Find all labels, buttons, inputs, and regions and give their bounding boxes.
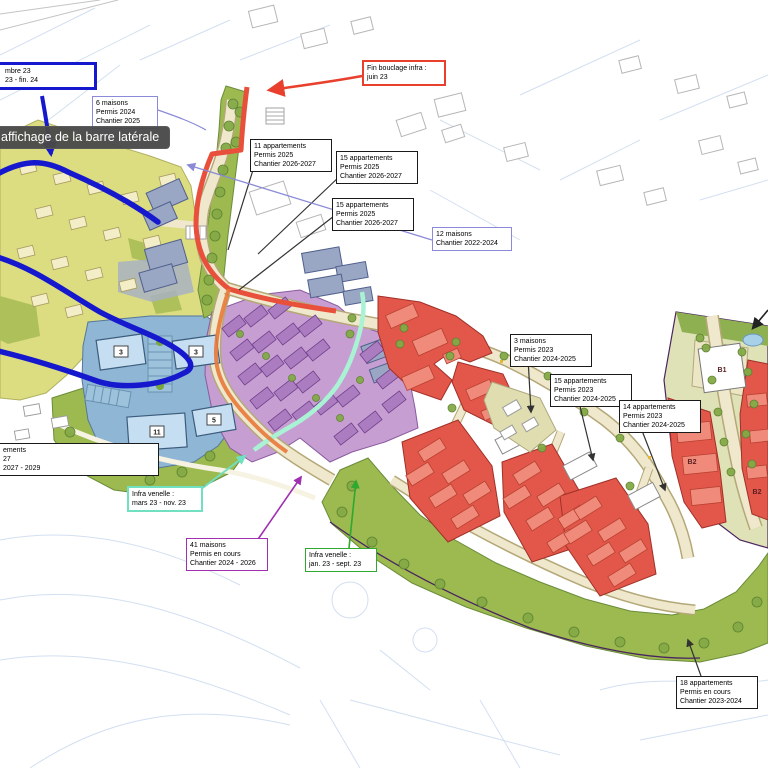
annotation-line: 12 maisons [436, 230, 508, 239]
annotation-line: 23 - fin. 24 [5, 76, 91, 85]
block-code-b2a: B2 [688, 459, 697, 466]
annotation-infra-top-partial: mbre 23 23 - fin. 24 [0, 62, 97, 90]
annotation-line: Chantier 2024-2025 [554, 395, 628, 404]
annotation-line: Permis 2025 [254, 151, 328, 160]
annotation-line: Permis 2023 [554, 386, 628, 395]
annotation-line: Chantier 2025 [96, 117, 154, 126]
annotation-line: Chantier 2026-2027 [340, 172, 414, 181]
annotation-line: jan. 23 - sept. 23 [309, 560, 373, 569]
annotation-line: 27 [3, 455, 155, 464]
block-code-b2b: B2 [753, 489, 762, 496]
unit-count: 11 [153, 430, 161, 437]
annotation-infra-venelle-mars: Infra venelle : mars 23 - nov. 23 [127, 486, 203, 512]
annotation-line: 2027 - 2029 [3, 464, 155, 473]
annotation-line: Permis 2023 [514, 346, 588, 355]
annotation-line: 6 maisons [96, 99, 154, 108]
annotation-12-maisons: 12 maisons Chantier 2022-2024 [432, 227, 512, 251]
annotation-line: Fin bouclage infra : [367, 64, 441, 73]
masterplan-viewer: 3 3 11 5 B1 B2 B2 mbre 23 23 - fin. 24 6… [0, 0, 768, 768]
annotation-line: Permis 2025 [336, 210, 410, 219]
tooltip-text: affichage de la barre latérale [1, 130, 159, 144]
annotation-line: Chantier 2026-2027 [254, 160, 328, 169]
annotation-line: Chantier 2024-2025 [514, 355, 588, 364]
annotation-18-appartements: 18 appartements Permis en cours Chantier… [676, 676, 758, 709]
unit-count: 3 [119, 350, 123, 357]
annotation-41-maisons: 41 maisons Permis en cours Chantier 2024… [186, 538, 268, 571]
unit-count: 5 [212, 418, 216, 425]
annotation-line: Chantier 2024-2025 [623, 421, 697, 430]
annotation-15-appartements-b: 15 appartements Permis 2025 Chantier 202… [332, 198, 414, 231]
sidebar-toggle-tooltip: affichage de la barre latérale [0, 126, 170, 149]
annotation-line: 15 appartements [336, 201, 410, 210]
annotation-line: 14 appartements [623, 403, 697, 412]
annotation-line: 3 maisons [514, 337, 588, 346]
annotation-fin-bouclage-infra: Fin bouclage infra : juin 23 [362, 60, 446, 86]
maisons3-plot [484, 382, 556, 452]
annotation-3-maisons: 3 maisons Permis 2023 Chantier 2024-2025 [510, 334, 592, 367]
annotation-line: 15 appartements [554, 377, 628, 386]
annotation-line: 11 appartements [254, 142, 328, 151]
annotation-infra-venelle-jan: Infra venelle : jan. 23 - sept. 23 [305, 548, 377, 572]
annotation-line: Chantier 2022-2024 [436, 239, 508, 248]
annotation-14-appartements: 14 appartements Permis 2023 Chantier 202… [619, 400, 701, 433]
annotation-line: Infra venelle : [309, 551, 373, 560]
annotation-line: Chantier 2023-2024 [680, 697, 754, 706]
annotation-left-partial: ements 27 2027 - 2029 [0, 443, 159, 476]
leader-fin-bouclage-arrow [270, 76, 362, 90]
annotation-line: Permis 2024 [96, 108, 154, 117]
annotation-line: Chantier 2024 - 2026 [190, 559, 264, 568]
annotation-line: 41 maisons [190, 541, 264, 550]
annotation-6-maisons: 6 maisons Permis 2024 Chantier 2025 [92, 96, 158, 129]
annotation-line: Permis 2023 [623, 412, 697, 421]
annotation-line: 18 appartements [680, 679, 754, 688]
annotation-line: juin 23 [367, 73, 441, 82]
annotation-line: 15 appartements [340, 154, 414, 163]
annotation-11-appartements: 11 appartements Permis 2025 Chantier 202… [250, 139, 332, 172]
annotation-15-appartements-a: 15 appartements Permis 2025 Chantier 202… [336, 151, 418, 184]
annotation-line: mbre 23 [5, 67, 91, 76]
annotation-line: Infra venelle : [132, 490, 198, 499]
block-code-b1: B1 [718, 367, 727, 374]
leader-maisons41-arrow [254, 477, 301, 545]
annotation-line: Chantier 2026-2027 [336, 219, 410, 228]
existing-buildings-outlines [248, 5, 758, 238]
annotation-line: Permis en cours [680, 688, 754, 697]
unit-count: 3 [194, 350, 198, 357]
annotation-line: mars 23 - nov. 23 [132, 499, 198, 508]
annotation-line: ements [3, 446, 155, 455]
annotation-line: Permis 2025 [340, 163, 414, 172]
annotation-line: Permis en cours [190, 550, 264, 559]
